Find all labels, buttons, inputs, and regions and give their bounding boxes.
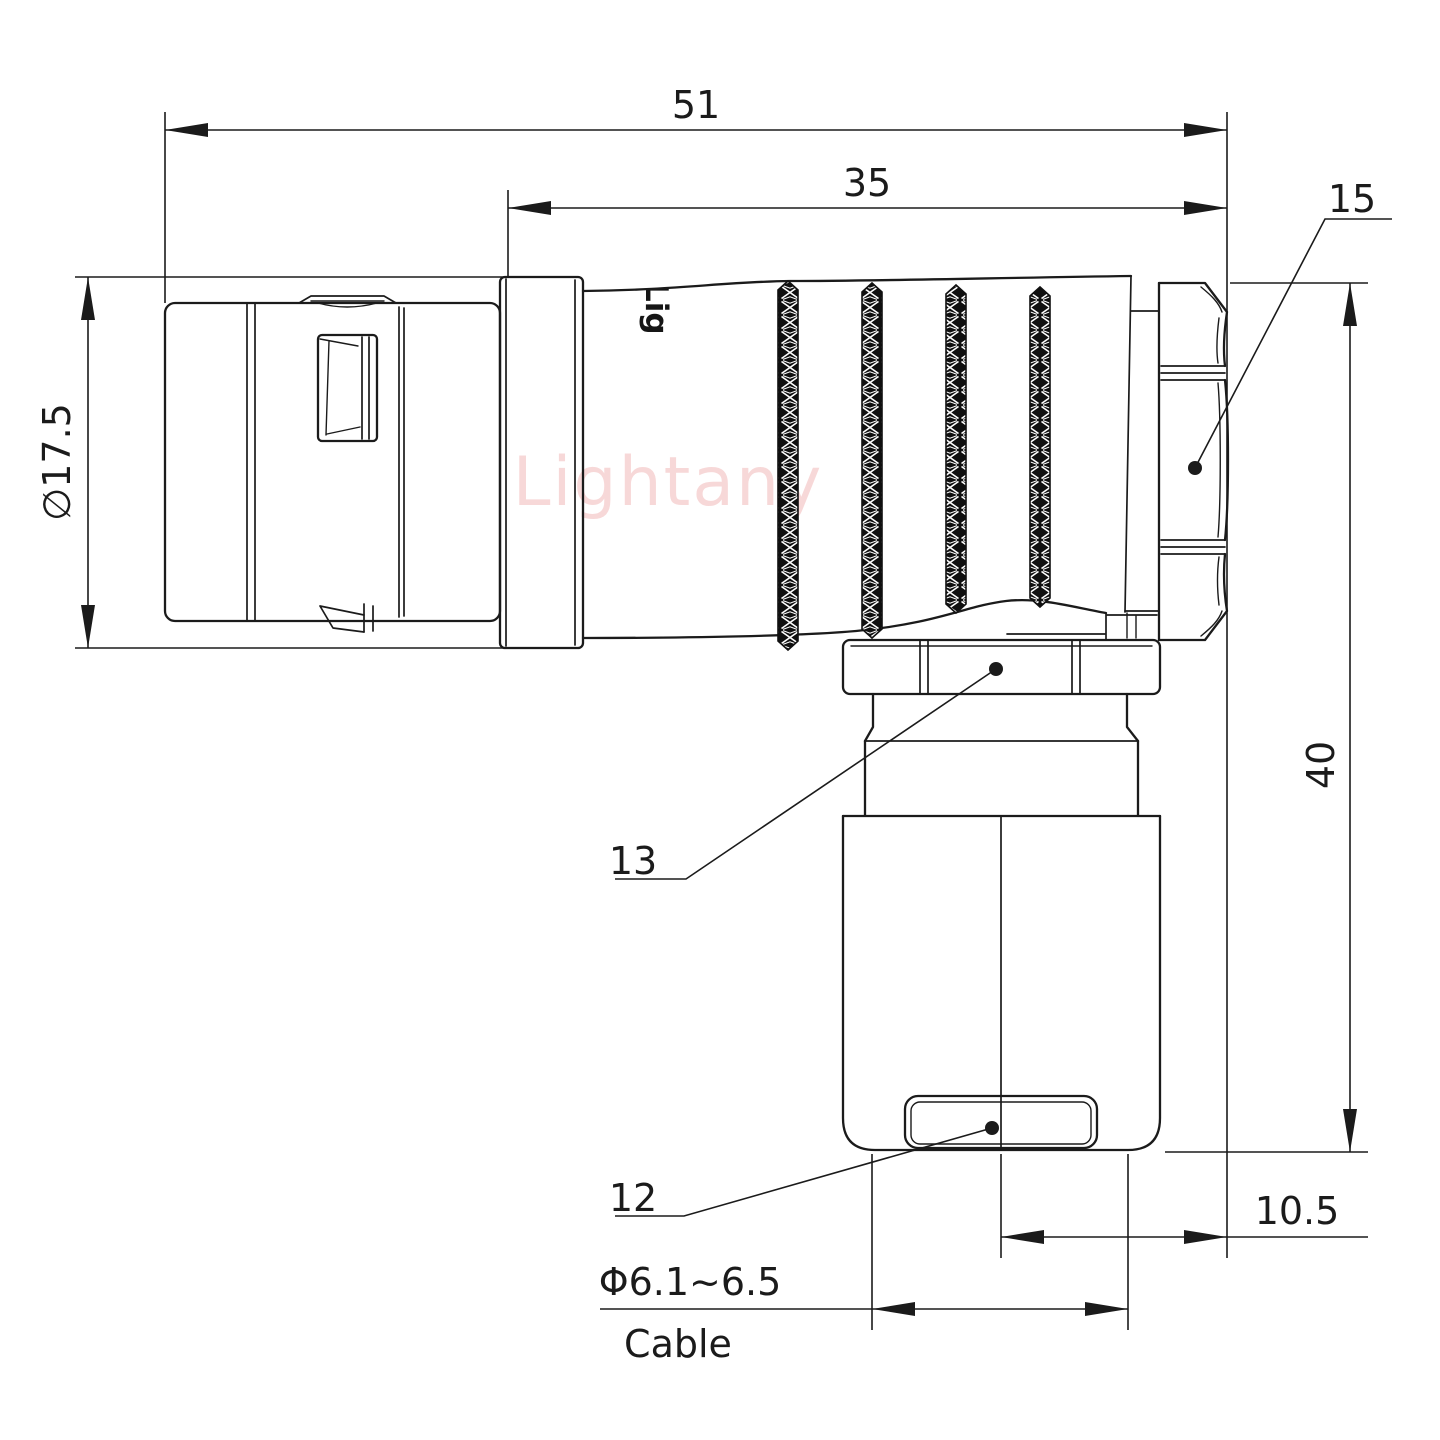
bottom-tab-bar: [364, 604, 373, 632]
knurl-band-1: [778, 281, 798, 650]
ref15-text: 15: [1328, 177, 1376, 221]
bottom-tab-wedge: [320, 606, 364, 632]
dim51-arrow-left: [165, 123, 208, 137]
dim175-extension-lines: [75, 277, 505, 648]
dim51-text: 51: [672, 83, 720, 127]
dim-grip-length: 35: [508, 161, 1227, 277]
dim105-arrow-right: [1184, 1230, 1227, 1244]
keyway-depth-lines: [320, 339, 360, 435]
nut-chamfer-inner: [1201, 287, 1222, 636]
nut-groove-upper: [1161, 366, 1225, 380]
watermark-text: Lightany: [513, 443, 824, 522]
dim105-text: 10.5: [1255, 1189, 1340, 1233]
nut-groove-lower: [1161, 540, 1225, 554]
keyway-far-edge: [362, 337, 369, 439]
ref13-leader-line: [615, 669, 996, 879]
dim35-arrow-left: [508, 201, 551, 215]
nut-bottom-chamfer: [1159, 554, 1227, 640]
front-shell-outline: [165, 303, 500, 621]
dimcable-text: Φ6.1~6.5: [599, 1260, 782, 1304]
leader-coupling-13: 13: [609, 662, 1003, 883]
cable-word-text: Cable: [624, 1322, 732, 1366]
dim40-arrow-bottom: [1343, 1109, 1357, 1152]
ref15-leader-dot: [1188, 461, 1202, 475]
dim175-text: ∅17.5: [35, 403, 79, 521]
dim40-arrow-top: [1343, 283, 1357, 326]
leader-relief-12: 12: [609, 1121, 999, 1220]
ref12-leader-dot: [985, 1121, 999, 1135]
barrel-end-edge: [1125, 276, 1131, 612]
dim175-arrow-top: [81, 277, 95, 320]
dim175-arrow-bottom: [81, 605, 95, 648]
dim-cable-offset: 10.5: [1001, 1154, 1368, 1258]
ref12-leader-line: [615, 1128, 992, 1216]
technical-drawing-page: Lightany Lig: [0, 0, 1440, 1440]
dim-overall-length: 51: [165, 83, 1227, 1258]
nut-facet-arcs: [1217, 318, 1220, 605]
dim40-extension-lines: [1165, 283, 1368, 1152]
dimcable-arrow-left: [872, 1302, 915, 1316]
connector-part: [165, 276, 1228, 1150]
dim105-arrow-left: [1001, 1230, 1044, 1244]
elbow-transition: [1007, 613, 1157, 639]
shell-section-lines: [399, 307, 404, 617]
front-shell: [165, 296, 500, 632]
dim51-arrow-right: [1184, 123, 1227, 137]
connector-drawing-svg: Lightany Lig: [0, 0, 1440, 1440]
dim35-arrow-right: [1184, 201, 1227, 215]
knurl-band-3: [946, 285, 966, 613]
lower-sleeve: [865, 694, 1138, 815]
elbow-inner-lines: [1127, 613, 1136, 638]
shell-ring-lines: [247, 303, 255, 621]
ref13-text: 13: [609, 839, 657, 883]
dim-shell-diameter: ∅17.5: [35, 277, 505, 648]
elbow-edges: [1007, 613, 1157, 639]
barrel-bottom-edge: [583, 600, 1106, 638]
knurl-band-2: [862, 283, 882, 638]
knurl-band-4: [1030, 287, 1050, 607]
cable-housing: [843, 816, 1160, 1150]
sleeve-sides: [865, 741, 1138, 815]
dim51-extension-lines: [165, 112, 1227, 1258]
dim35-text: 35: [843, 161, 891, 205]
dim-cable-diameter: Φ6.1~6.5 Cable: [599, 1154, 1128, 1366]
ref12-text: 12: [609, 1176, 657, 1220]
sleeve-collar: [865, 694, 1138, 741]
dim40-text: 40: [1299, 741, 1343, 789]
dimcable-arrow-right: [1085, 1302, 1128, 1316]
barrel-top-edge: [583, 276, 1131, 291]
dim-elbow-height: 40: [1165, 283, 1368, 1152]
ref13-leader-dot: [989, 662, 1003, 676]
